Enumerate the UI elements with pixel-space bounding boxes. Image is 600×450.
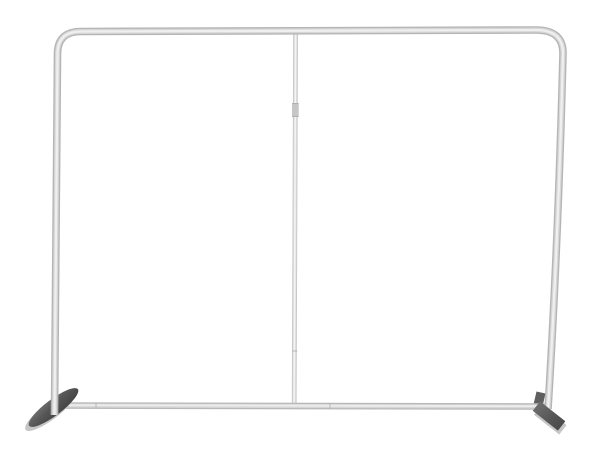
bottom-bar-highlight [55,405,549,406]
center-pole-connector-sleeve [292,103,299,117]
product-photo-canvas [0,0,600,450]
backdrop-frame-illustration [0,0,600,450]
bottom-bar [55,403,549,410]
background [0,0,600,450]
